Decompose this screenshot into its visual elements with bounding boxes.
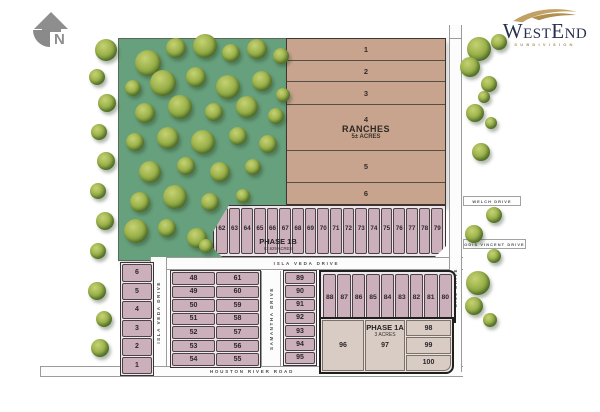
lot: 57	[216, 326, 259, 339]
lot: 75	[381, 208, 393, 254]
phase-1a-stack: 98 99 100	[406, 320, 451, 371]
ranches-block: 1 2 3 4 RANCHES 5± ACRES 5 6	[286, 38, 446, 205]
lot: 58	[216, 313, 259, 326]
tree-icon	[89, 69, 105, 85]
lot: 48	[172, 272, 215, 285]
lot-97-with-label: PHASE 1A 3 ACRES 97	[365, 320, 405, 371]
ranch-lot: 3	[287, 82, 445, 104]
street-label-odis-vincent: ODIS VINCENT DRIVE	[463, 239, 526, 249]
lot: 72	[343, 208, 355, 254]
ranch-lot: 6	[287, 183, 445, 204]
street-label-samantha: SAMANTHA DRIVE	[269, 287, 274, 350]
ranch-lot-number: 5	[364, 162, 368, 171]
tree-icon	[96, 311, 112, 327]
east-lot-column: 89 90 91 92 93 94 95	[283, 270, 317, 366]
lot: 90	[285, 285, 315, 297]
lot: 78	[419, 208, 431, 254]
lot: 71	[330, 208, 342, 254]
lot: 84	[381, 274, 394, 321]
road-samantha-drive: SAMANTHA DRIVE	[261, 271, 281, 366]
lot: 83	[395, 274, 408, 321]
ranches-acreage: 5± ACRES	[351, 134, 380, 141]
lot: 82	[410, 274, 423, 321]
north-arrow-icon: N	[30, 10, 76, 50]
tree-icon	[96, 212, 114, 230]
tree-icon	[472, 143, 490, 161]
tree-icon	[466, 104, 484, 122]
road-isla-veda-horizontal: ISLA VEDA DRIVE	[150, 257, 463, 270]
lot: 92	[285, 312, 315, 324]
lot: 2	[122, 338, 152, 356]
logo: WestEnd SUBDIVISION	[492, 6, 598, 47]
street-label-houston: HOUSTON RIVER ROAD	[210, 369, 294, 374]
lot: 53	[172, 340, 215, 353]
tree-icon	[485, 117, 497, 129]
ranches-title: RANCHES	[342, 124, 390, 134]
ranch-lot: 5	[287, 151, 445, 182]
lot: 87	[337, 274, 350, 321]
tree-icon	[91, 339, 109, 357]
lot: 97	[381, 342, 389, 349]
ranch-lot: 2	[287, 61, 445, 82]
lot: 70	[317, 208, 329, 254]
tree-icon	[90, 183, 106, 199]
lot: 79	[431, 208, 443, 254]
lot: 54	[172, 353, 215, 366]
north-arrow: N	[30, 10, 76, 55]
ranch-lot-number: 2	[364, 67, 368, 76]
ranch-lot-number: 1	[364, 45, 368, 54]
lot: 52	[172, 326, 215, 339]
lot: 69	[305, 208, 317, 254]
lot: 6	[122, 264, 152, 282]
lot: 99	[406, 337, 451, 353]
center-lot-block: 48 61 49 60 50 59 51 58 52 57 53 56 54 5…	[170, 270, 261, 368]
lot: 64	[241, 208, 253, 254]
phase-1b-strip: 62 63 64 65 66 67 68 69 70 71 72 73 74 7…	[213, 205, 446, 257]
tree-icon	[481, 76, 497, 92]
lot: 5	[122, 283, 152, 301]
lot: 66	[267, 208, 279, 254]
tree-icon	[97, 152, 115, 170]
lot: 88	[323, 274, 336, 321]
tree-icon	[486, 207, 502, 223]
lot: 51	[172, 313, 215, 326]
logo-name: WestEnd	[492, 21, 598, 41]
tree-icon	[487, 249, 501, 263]
lot: 67	[279, 208, 291, 254]
ranch-lot: 4 RANCHES 5± ACRES	[287, 105, 445, 152]
lot: 65	[254, 208, 266, 254]
ranch-lot-number: 4	[364, 115, 368, 124]
lot: 98	[406, 320, 451, 336]
lot: 85	[366, 274, 379, 321]
lot: 56	[216, 340, 259, 353]
lot: 49	[172, 286, 215, 299]
tree-icon	[467, 37, 491, 61]
tree-icon	[465, 297, 483, 315]
street-label-isla-veda-vertical: ISLA VEDA DRIVE	[156, 281, 161, 344]
lot: 3	[122, 320, 152, 338]
lot: 61	[216, 272, 259, 285]
phase-1a-acreage: 3 ACRES	[374, 332, 395, 338]
tree-icon	[95, 39, 117, 61]
lot: 86	[352, 274, 365, 321]
lot: 50	[172, 299, 215, 312]
west-lot-column: 6 5 4 3 2 1	[120, 262, 154, 376]
lot: 80	[439, 274, 452, 321]
tree-icon	[466, 271, 490, 295]
tree-icon	[91, 124, 107, 140]
lot: 63	[229, 208, 241, 254]
lot: 95	[285, 352, 315, 364]
lot: 60	[216, 286, 259, 299]
tree-icon	[90, 243, 106, 259]
lot: 100	[406, 355, 451, 371]
tree-icon	[478, 91, 490, 103]
lot: 96	[322, 320, 364, 371]
ranch-lot-number: 3	[364, 89, 368, 98]
north-letter: N	[54, 31, 65, 48]
lot: 73	[355, 208, 367, 254]
lot: 76	[393, 208, 405, 254]
lot: 91	[285, 299, 315, 311]
lot: 55	[216, 353, 259, 366]
lot: 89	[285, 272, 315, 284]
road-gill-top-cap	[449, 38, 462, 39]
ranch-lot: 1	[287, 39, 445, 61]
lot: 59	[216, 299, 259, 312]
tree-icon	[460, 57, 480, 77]
lot: 74	[368, 208, 380, 254]
tree-icon	[98, 94, 116, 112]
ranch-lot-number: 6	[364, 189, 368, 198]
lot: 94	[285, 338, 315, 350]
phase-1a-block: 96 PHASE 1A 3 ACRES 97 98 99 100	[319, 317, 454, 374]
north-lot-row: 88 87 86 85 84 83 82 81 80	[319, 270, 456, 323]
street-label-isla-veda: ISLA VEDA DRIVE	[274, 261, 340, 266]
lot: 68	[292, 208, 304, 254]
tree-icon	[88, 282, 106, 300]
subdivision-plat-map: N WestEnd SUBDIVISION 1 2 3 4 RANCHES 5±…	[0, 0, 600, 412]
lot: 4	[122, 301, 152, 319]
lot: 77	[406, 208, 418, 254]
lot: 93	[285, 325, 315, 337]
lot: 81	[424, 274, 437, 321]
tree-icon	[483, 313, 497, 327]
street-label-welch: WELCH DRIVE	[463, 196, 521, 206]
phase-1a-title: PHASE 1A	[366, 324, 404, 332]
lot: 1	[122, 357, 152, 375]
